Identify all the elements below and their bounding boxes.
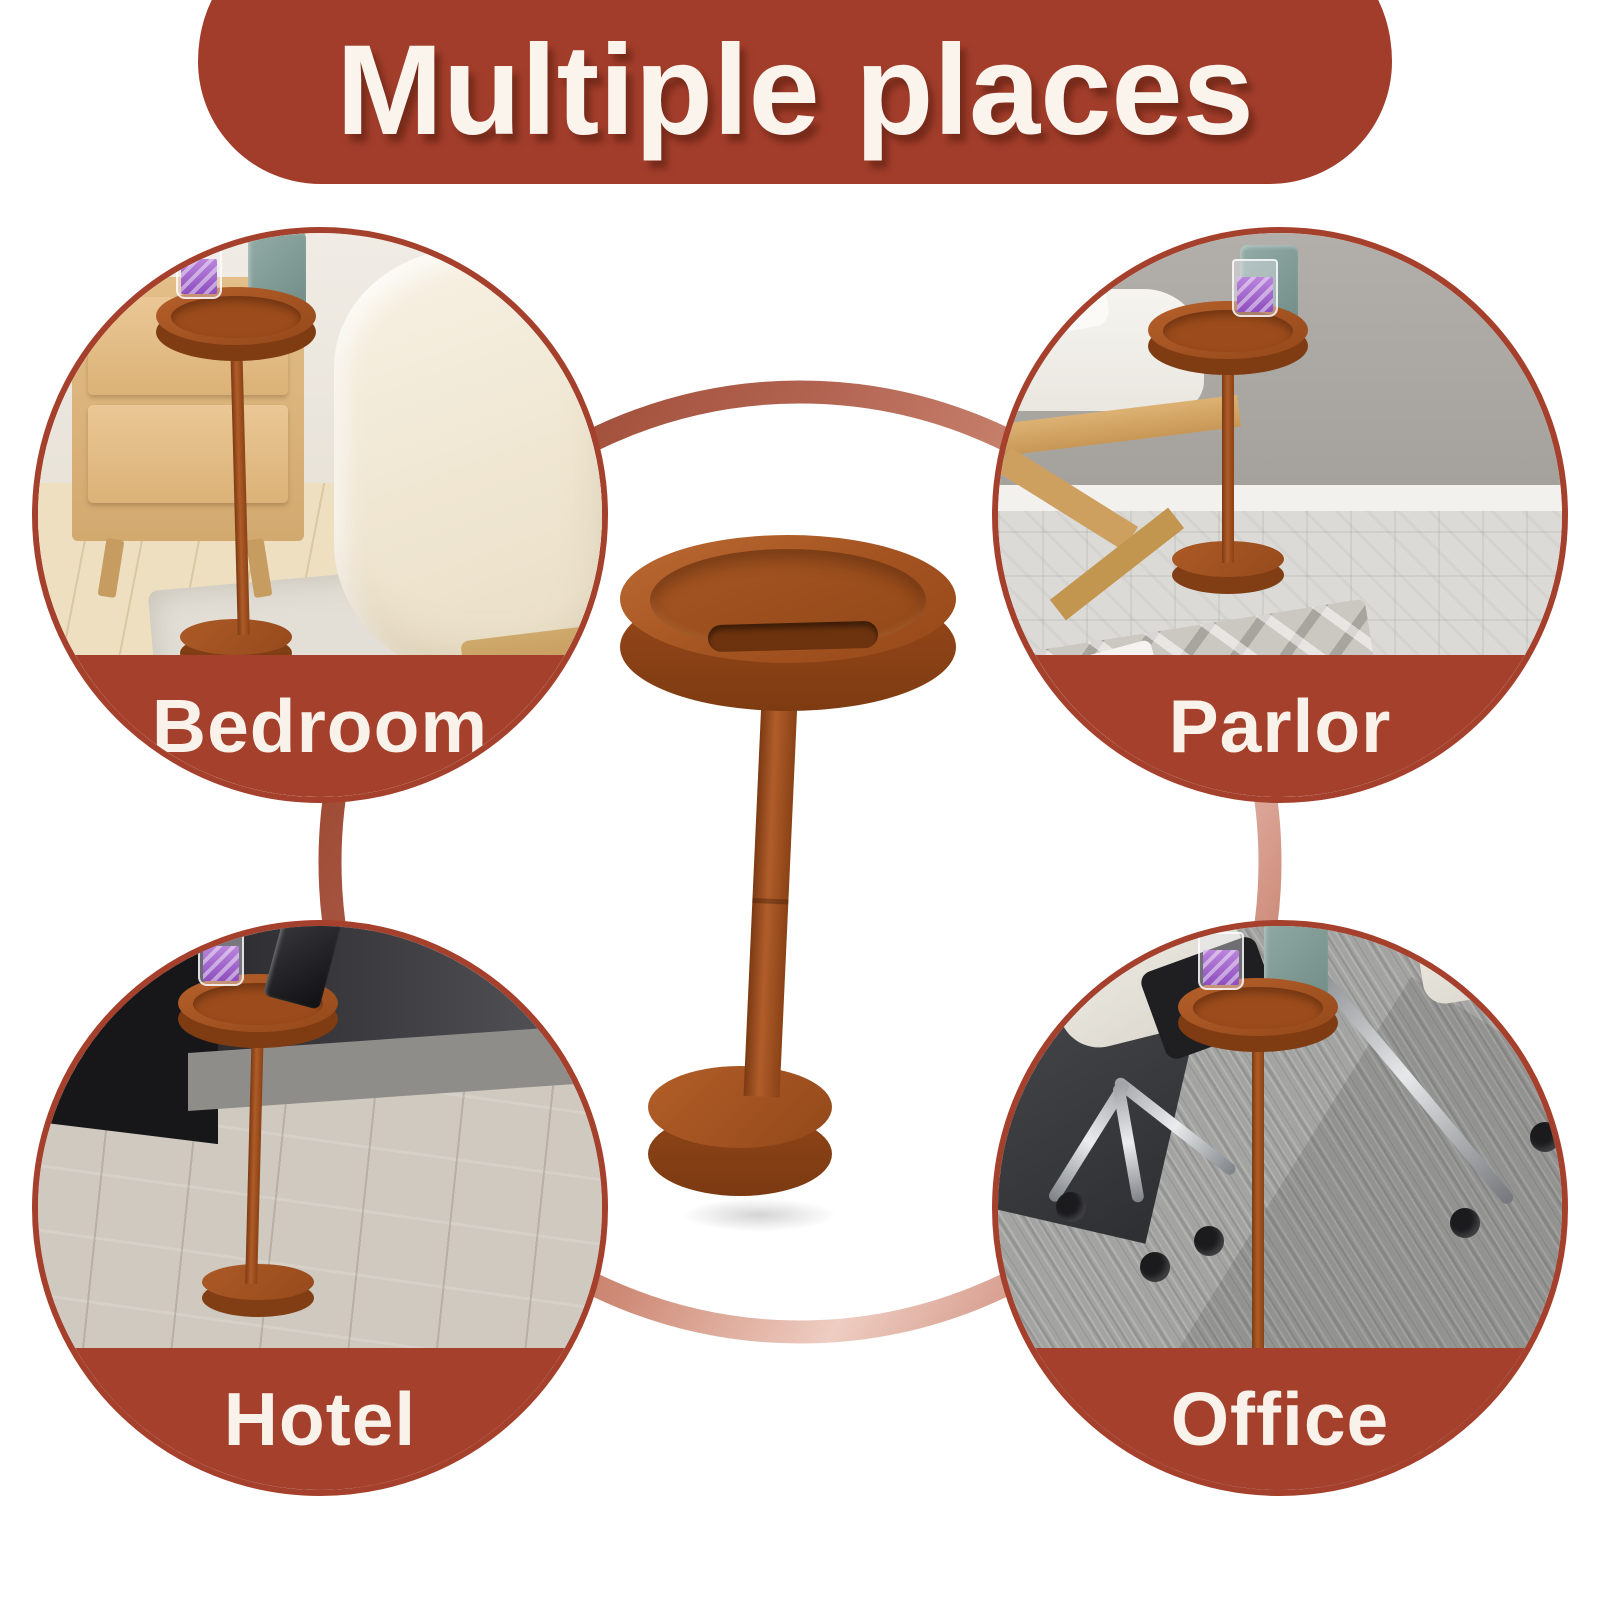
drink-glass (1232, 259, 1278, 317)
label-cap-office: Office (998, 1348, 1562, 1490)
drink-glass (1198, 932, 1244, 990)
scene-label-bedroom: Bedroom (152, 683, 488, 769)
scene-label-hotel: Hotel (224, 1376, 417, 1462)
scene-circle-parlor: Parlor (992, 227, 1568, 803)
label-cap-hotel: Hotel (38, 1348, 602, 1490)
chair-caster (1056, 1192, 1086, 1222)
scene-circle-bedroom: Bedroom (32, 227, 608, 803)
table-base-top (180, 619, 292, 655)
table-base-top (202, 1264, 314, 1300)
chair-caster (1140, 1252, 1170, 1282)
table-tray-recess (1163, 310, 1293, 352)
product-phone-slot (708, 621, 879, 652)
table-tray-recess (171, 296, 301, 338)
drink-glass (176, 241, 222, 299)
drink-glass (198, 928, 244, 986)
chair-caster (1450, 1208, 1480, 1238)
purple-drink (203, 946, 239, 981)
scene-circle-hotel: Hotel (32, 920, 608, 1496)
table-pole (1222, 349, 1234, 563)
table-pole (230, 335, 250, 635)
table-pole (245, 1022, 264, 1284)
title-banner: Multiple places (198, 0, 1392, 184)
table-tray-recess (1193, 987, 1323, 1029)
label-cap-parlor: Parlor (998, 655, 1562, 797)
chair-caster (1530, 1122, 1560, 1152)
product-base-top (648, 1066, 832, 1148)
purple-drink (1203, 950, 1239, 985)
product-collage: Multiple places (0, 0, 1600, 1600)
product-shadow (652, 1192, 866, 1238)
page-title: Multiple places (336, 17, 1254, 164)
label-cap-bedroom: Bedroom (38, 655, 602, 797)
bed-blanket (334, 247, 608, 683)
product-pole (744, 644, 800, 1097)
purple-drink (1237, 277, 1273, 312)
scene-label-parlor: Parlor (1169, 683, 1392, 769)
scene-label-office: Office (1171, 1376, 1390, 1462)
scene-circle-office: Office (992, 920, 1568, 1496)
purple-drink (181, 259, 217, 294)
